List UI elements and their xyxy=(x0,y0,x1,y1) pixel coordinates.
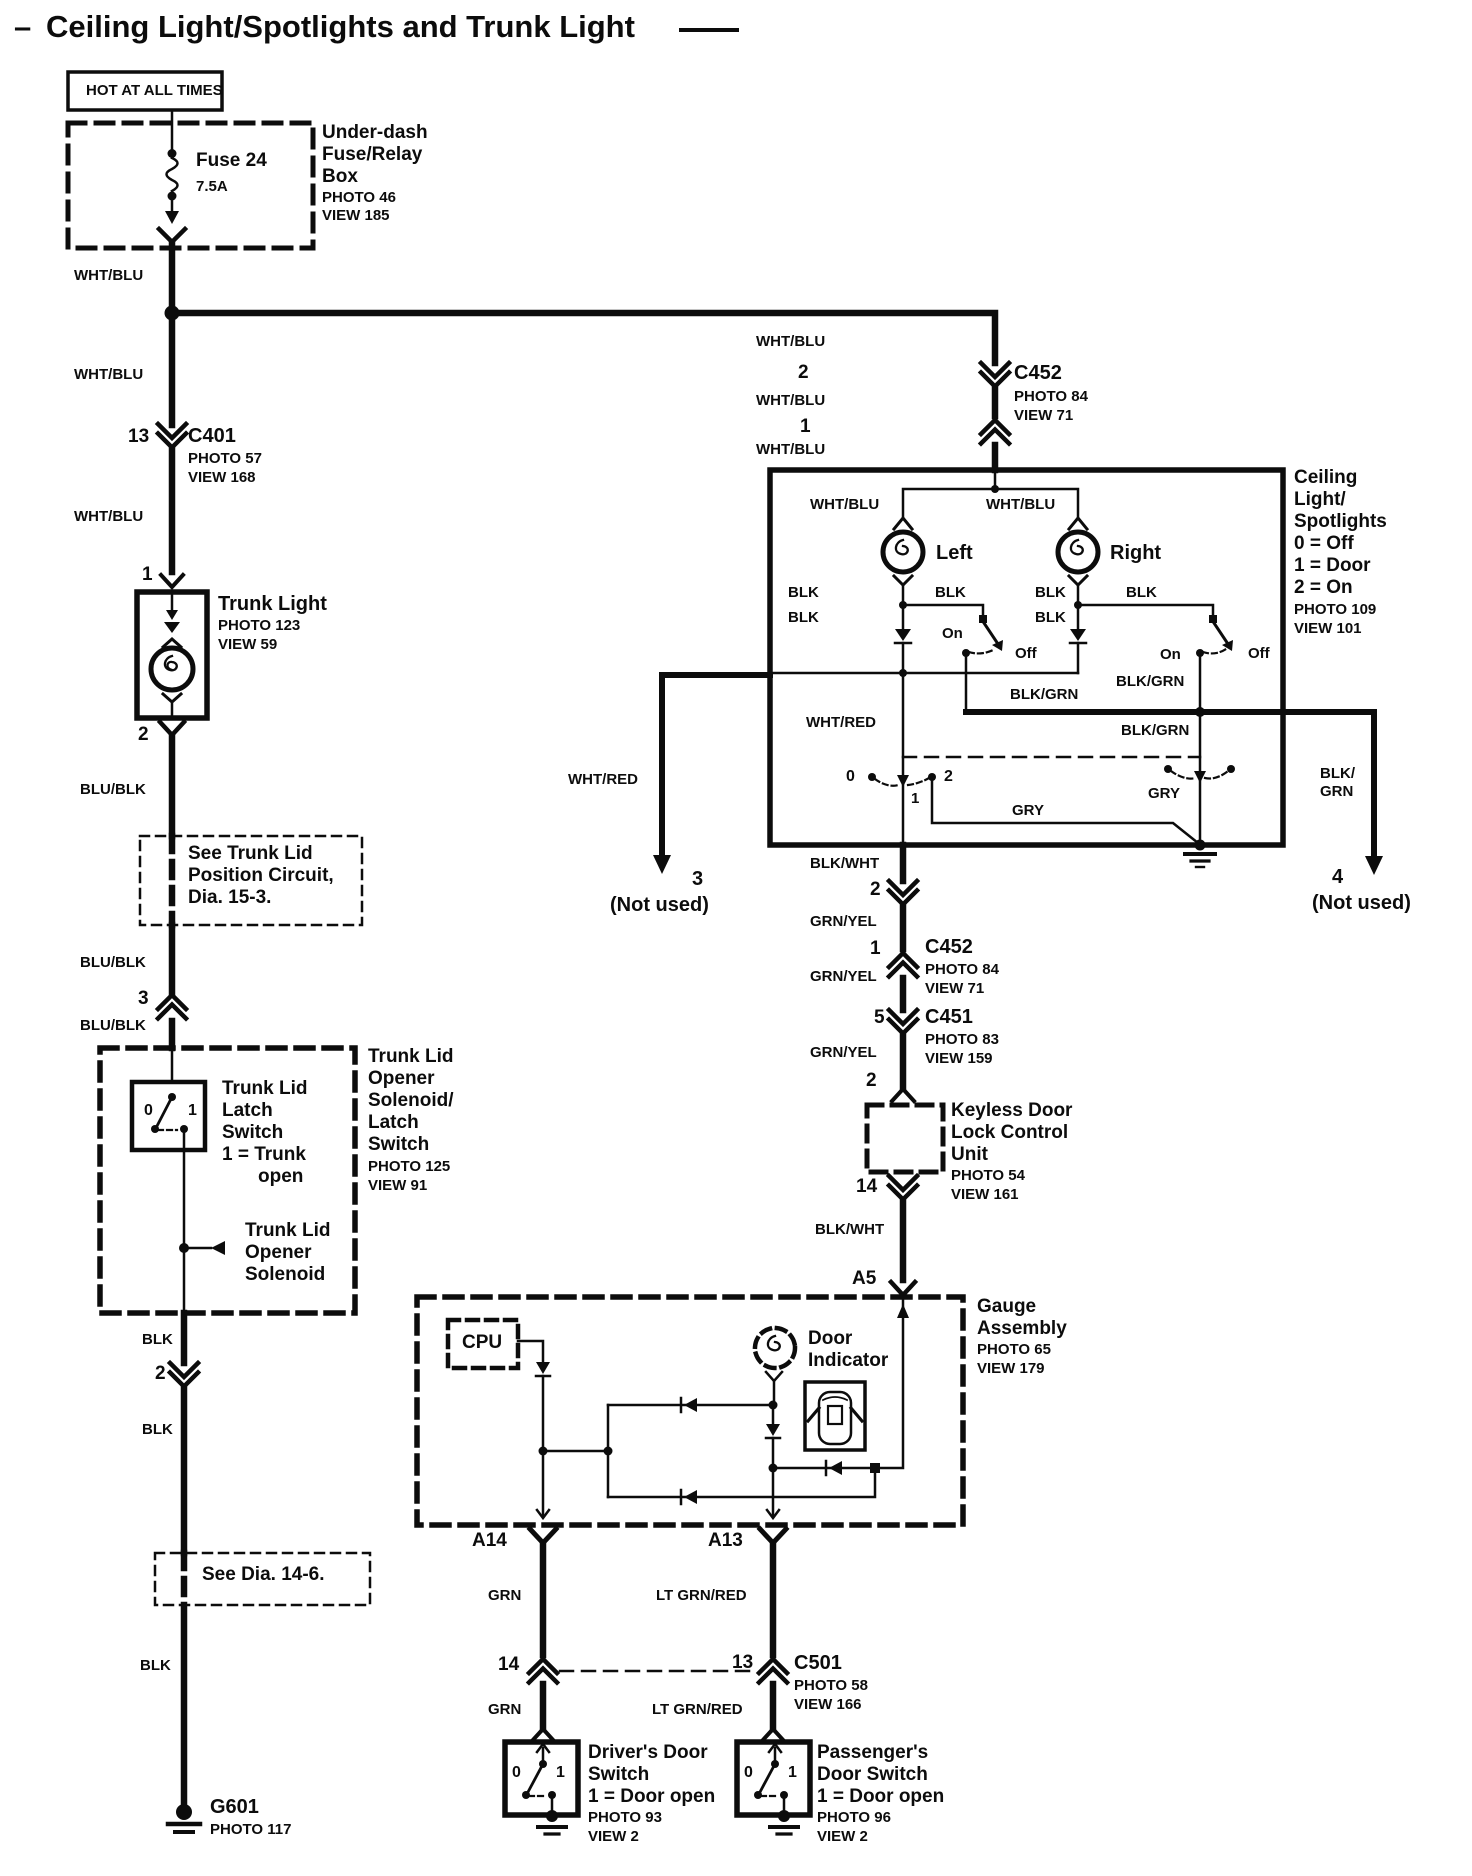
connector-photo: PHOTO 83 xyxy=(925,1032,999,1049)
connector-c501-pin13-icon xyxy=(759,1659,787,1683)
under-dash-fuse-box xyxy=(68,123,313,248)
note-line: See Trunk Lid xyxy=(188,843,313,864)
ground-icon xyxy=(778,1810,790,1822)
switch-state: On xyxy=(1160,647,1181,664)
pin-number: 2 xyxy=(138,724,149,745)
wire-label: BLK/GRN xyxy=(1010,687,1078,704)
connector-photo: PHOTO 84 xyxy=(925,962,999,979)
wire-label: BLK xyxy=(142,1422,173,1439)
ceiling-box-label: Light/ xyxy=(1294,489,1346,510)
wire-label: GRN/YEL xyxy=(810,969,877,986)
switch-state: Off xyxy=(1015,646,1037,663)
diode-icon xyxy=(766,1424,780,1436)
right-switch-arm-icon xyxy=(1214,623,1228,644)
switch-state: On xyxy=(942,626,963,643)
connector-c452-pin2-icon xyxy=(981,363,1009,387)
wire-label: WHT/BLU xyxy=(756,442,825,459)
switch-position: 1 xyxy=(556,1764,565,1782)
component-name: 1 = Door open xyxy=(588,1786,715,1807)
wire-label: BLK xyxy=(788,610,819,627)
component-photo: PHOTO 96 xyxy=(817,1810,891,1827)
ceiling-box-view: VIEW 101 xyxy=(1294,621,1362,638)
connector-view: VIEW 71 xyxy=(1014,408,1073,425)
indicator-label: Indicator xyxy=(808,1350,888,1371)
pin-number: 2 xyxy=(866,1070,877,1091)
component-view: VIEW 161 xyxy=(951,1187,1019,1204)
component-name: Opener xyxy=(368,1068,435,1089)
wire-label: BLU/BLK xyxy=(80,1018,146,1035)
wire-wht-blu xyxy=(176,313,995,363)
latch-switch-label: open xyxy=(258,1166,303,1187)
wire-label: GRN xyxy=(488,1588,521,1605)
wire-label: BLK xyxy=(1035,585,1066,602)
fuse-element-icon xyxy=(167,158,178,191)
wire-label: WHT/BLU xyxy=(810,497,879,514)
bulb-filament-icon xyxy=(165,656,177,670)
arrowhead-up-icon xyxy=(897,1304,909,1318)
wire-label: WHT/BLU xyxy=(74,509,143,526)
arrowhead-down-icon xyxy=(653,855,671,874)
pin-number: 2 xyxy=(155,1363,166,1384)
wire-label: BLK xyxy=(142,1332,173,1349)
wire-label: BLK/WHT xyxy=(815,1222,884,1239)
connector-chevron-icon xyxy=(892,1089,914,1101)
wire-label: GRN/YEL xyxy=(810,1045,877,1062)
keyless-unit-box xyxy=(867,1105,943,1172)
note-line: Position Circuit, xyxy=(188,865,334,886)
open-door-icon xyxy=(808,1408,862,1421)
not-used-note: (Not used) xyxy=(1312,892,1411,914)
selector-position: 2 xyxy=(944,768,953,786)
wire-label: BLU/BLK xyxy=(80,782,146,799)
fuse-box-name-3: Box xyxy=(322,166,358,187)
component-name: Unit xyxy=(951,1144,988,1165)
hot-at-all-times-label: HOT AT ALL TIMES xyxy=(86,83,223,100)
pin-number: 13 xyxy=(128,426,149,447)
component-name: Keyless Door xyxy=(951,1100,1072,1121)
component-view: VIEW 179 xyxy=(977,1361,1045,1378)
left-switch-arm-icon xyxy=(984,623,998,644)
wire-label: BLK/WHT xyxy=(810,856,879,873)
wire-label: WHT/RED xyxy=(806,715,876,732)
latch-switch-label: Switch xyxy=(222,1122,283,1143)
trunk-lid-latch-symbols xyxy=(100,1048,370,1832)
connector-c452-icon xyxy=(889,953,917,977)
splice-3-icon xyxy=(158,995,186,1019)
connector-a5-icon xyxy=(891,1282,915,1295)
component-photo: PHOTO 93 xyxy=(588,1810,662,1827)
solenoid-label: Trunk Lid xyxy=(245,1220,331,1241)
switch-arm-icon xyxy=(760,1764,775,1792)
connector-view: VIEW 71 xyxy=(925,981,984,998)
ceiling-box-label: Spotlights xyxy=(1294,511,1387,532)
wire-label: LT GRN/RED xyxy=(652,1702,743,1719)
switch-state: Off xyxy=(1248,646,1270,663)
connector-photo: PHOTO 58 xyxy=(794,1678,868,1695)
pin-number: 2 xyxy=(798,362,809,383)
ground-photo: PHOTO 117 xyxy=(210,1822,291,1839)
not-used-note: (Not used) xyxy=(610,894,709,916)
connector-chevron-icon xyxy=(161,575,183,587)
wire-label: BLK xyxy=(140,1658,171,1675)
diode-icon xyxy=(164,622,180,633)
wire-label: GRN/YEL xyxy=(810,914,877,931)
lamp-name: Left xyxy=(936,542,973,564)
wire-label: BLK/GRN xyxy=(1121,723,1189,740)
solenoid-label: Opener xyxy=(245,1242,312,1263)
component-name: 1 = Door open xyxy=(817,1786,944,1807)
fuse-box-name-2: Fuse/Relay xyxy=(322,144,422,165)
left-spotlight-bulb-icon xyxy=(883,532,923,572)
splice-2-icon xyxy=(170,1363,198,1387)
pin-number: A13 xyxy=(708,1530,743,1551)
component-view: VIEW 59 xyxy=(218,637,277,654)
fuse-name: Fuse 24 xyxy=(196,150,267,171)
pin-number: 3 xyxy=(138,988,149,1009)
diode-icon xyxy=(829,1461,842,1475)
pin-number: 13 xyxy=(732,1652,753,1673)
internal-ground-icon xyxy=(1195,840,1206,851)
selector-position: 0 xyxy=(846,768,855,786)
pin-number: A5 xyxy=(852,1268,876,1289)
wire-label: BLK/GRN xyxy=(1116,674,1184,691)
connector-photo: PHOTO 84 xyxy=(1014,389,1088,406)
arrowhead-down-icon xyxy=(165,211,179,224)
connector-name: C401 xyxy=(188,425,236,447)
wire-label: GRY xyxy=(1148,786,1180,803)
ground-icon xyxy=(546,1810,558,1822)
wiring-diagram-page: – Ceiling Light/Spotlights and Trunk Lig… xyxy=(0,0,1472,1876)
component-name: Passenger's xyxy=(817,1742,928,1763)
component-photo: PHOTO 65 xyxy=(977,1342,1051,1359)
solenoid-label: Solenoid xyxy=(245,1264,325,1285)
wire-label: BLK xyxy=(1126,585,1157,602)
note-line: See Dia. 14-6. xyxy=(202,1564,325,1585)
component-name: Assembly xyxy=(977,1318,1067,1339)
switch-position: 1 xyxy=(788,1764,797,1782)
wire-label: WHT/BLU xyxy=(756,334,825,351)
ground-g601-icon xyxy=(176,1804,192,1820)
component-name: Switch xyxy=(588,1764,649,1785)
connector-chevron-icon xyxy=(160,722,184,735)
pin-number: 1 xyxy=(870,938,881,959)
component-name: Trunk Lid xyxy=(368,1046,454,1067)
connector-chevron-icon xyxy=(889,1176,917,1200)
pin-number: A14 xyxy=(472,1530,507,1551)
latch-switch-label: Trunk Lid xyxy=(222,1078,308,1099)
diode-icon xyxy=(536,1362,550,1374)
component-name: Latch xyxy=(368,1112,419,1133)
ceiling-box-photo: PHOTO 109 xyxy=(1294,602,1376,619)
switch-position: 0 xyxy=(144,1102,153,1120)
latch-switch-label: 1 = Trunk xyxy=(222,1144,306,1165)
component-name: Door Switch xyxy=(817,1764,928,1785)
wire-wht-red xyxy=(662,675,770,856)
component-photo: PHOTO 123 xyxy=(218,618,300,635)
arrowhead-down-icon xyxy=(1365,856,1383,875)
wire-label: WHT/BLU xyxy=(986,497,1055,514)
lamp-name: Right xyxy=(1110,542,1161,564)
wire-label: WHT/BLU xyxy=(74,268,143,285)
wire-label: BLK xyxy=(788,585,819,602)
pin-number: 3 xyxy=(692,868,703,890)
connector-photo: PHOTO 57 xyxy=(188,451,262,468)
ceiling-box-label: 2 = On xyxy=(1294,577,1353,598)
component-name: Gauge xyxy=(977,1296,1036,1317)
wire-label: GRY xyxy=(1012,803,1044,820)
wire-label: LT GRN/RED xyxy=(656,1588,747,1605)
pin-number: 5 xyxy=(874,1007,885,1028)
ceiling-feed-wires xyxy=(176,313,1009,470)
connector-name: C452 xyxy=(1014,362,1062,384)
ground-name: G601 xyxy=(210,1796,259,1818)
component-photo: PHOTO 54 xyxy=(951,1168,1025,1185)
component-name: Trunk Light xyxy=(218,593,327,615)
connector-c501-pin14-icon xyxy=(529,1659,557,1683)
fuse-box-photo: PHOTO 46 xyxy=(322,190,396,207)
switch-arm-icon xyxy=(528,1764,543,1792)
wire-label: BLU/BLK xyxy=(80,955,146,972)
latch-switch-label: Latch xyxy=(222,1100,273,1121)
connector-a14-icon xyxy=(530,1529,556,1543)
pin-number: 14 xyxy=(856,1176,877,1197)
component-name: Switch xyxy=(368,1134,429,1155)
right-spotlight-bulb-icon xyxy=(1058,532,1098,572)
wire-label: BLK xyxy=(1035,610,1066,627)
connector-c451-icon xyxy=(889,1010,917,1034)
switch-position: 0 xyxy=(744,1764,753,1782)
pin-number: 2 xyxy=(870,879,881,900)
diode-icon xyxy=(684,1490,697,1504)
wire-label: WHT/BLU xyxy=(756,393,825,410)
connector-name: C501 xyxy=(794,1652,842,1674)
connector-view: VIEW 168 xyxy=(188,470,256,487)
switch-arm-icon xyxy=(157,1097,172,1126)
component-name: Driver's Door xyxy=(588,1742,708,1763)
pin-number: 14 xyxy=(498,1654,519,1675)
door-indicator-bulb-icon xyxy=(755,1328,795,1368)
cpu-label: CPU xyxy=(462,1332,502,1353)
connector-chevron-icon xyxy=(532,1729,554,1741)
pin-number: 1 xyxy=(142,564,153,585)
diode-icon xyxy=(684,1398,697,1412)
wire-label: WHT/BLU xyxy=(74,367,143,384)
wire-label: GRN xyxy=(1320,784,1353,801)
switch-position: 1 xyxy=(188,1102,197,1120)
component-view: VIEW 2 xyxy=(588,1829,639,1846)
connector-view: VIEW 159 xyxy=(925,1051,993,1068)
diode-icon xyxy=(1070,629,1086,641)
ceiling-box-label: 1 = Door xyxy=(1294,555,1371,576)
fuse-box-view: VIEW 185 xyxy=(322,208,390,225)
component-name: Lock Control xyxy=(951,1122,1068,1143)
wire-label: WHT/RED xyxy=(568,772,638,789)
title-dash: – xyxy=(14,10,31,45)
connector-chevron-icon xyxy=(159,229,185,242)
connector-c452-pin1-icon xyxy=(981,420,1009,444)
connector-a13-icon xyxy=(760,1529,786,1543)
wire-label: BLK/ xyxy=(1320,766,1355,783)
ceiling-box-label: 0 = Off xyxy=(1294,533,1354,554)
component-view: VIEW 91 xyxy=(368,1178,427,1195)
switch-position: 0 xyxy=(512,1764,521,1782)
splice-2-icon xyxy=(889,881,917,905)
wire-label: BLK xyxy=(935,585,966,602)
fuse-rating: 7.5A xyxy=(196,179,228,196)
note-line: Dia. 15-3. xyxy=(188,887,271,908)
connector-name: C451 xyxy=(925,1006,973,1028)
component-photo: PHOTO 125 xyxy=(368,1159,450,1176)
component-view: VIEW 2 xyxy=(817,1829,868,1846)
wire-label: GRN xyxy=(488,1702,521,1719)
connector-view: VIEW 166 xyxy=(794,1697,862,1714)
connector-name: C452 xyxy=(925,936,973,958)
fuse-box-name-1: Under-dash xyxy=(322,122,428,143)
solenoid-arrow-icon xyxy=(211,1241,225,1255)
component-name: Solenoid/ xyxy=(368,1090,454,1111)
page-title: Ceiling Light/Spotlights and Trunk Light xyxy=(46,10,635,45)
ceiling-box-label: Ceiling xyxy=(1294,467,1357,488)
selector-position: 1 xyxy=(911,791,919,808)
connector-chevron-icon xyxy=(762,1729,784,1741)
pin-number: 4 xyxy=(1332,866,1343,888)
diode-icon xyxy=(895,629,911,641)
indicator-label: Door xyxy=(808,1328,852,1349)
pin-number: 1 xyxy=(800,416,811,437)
